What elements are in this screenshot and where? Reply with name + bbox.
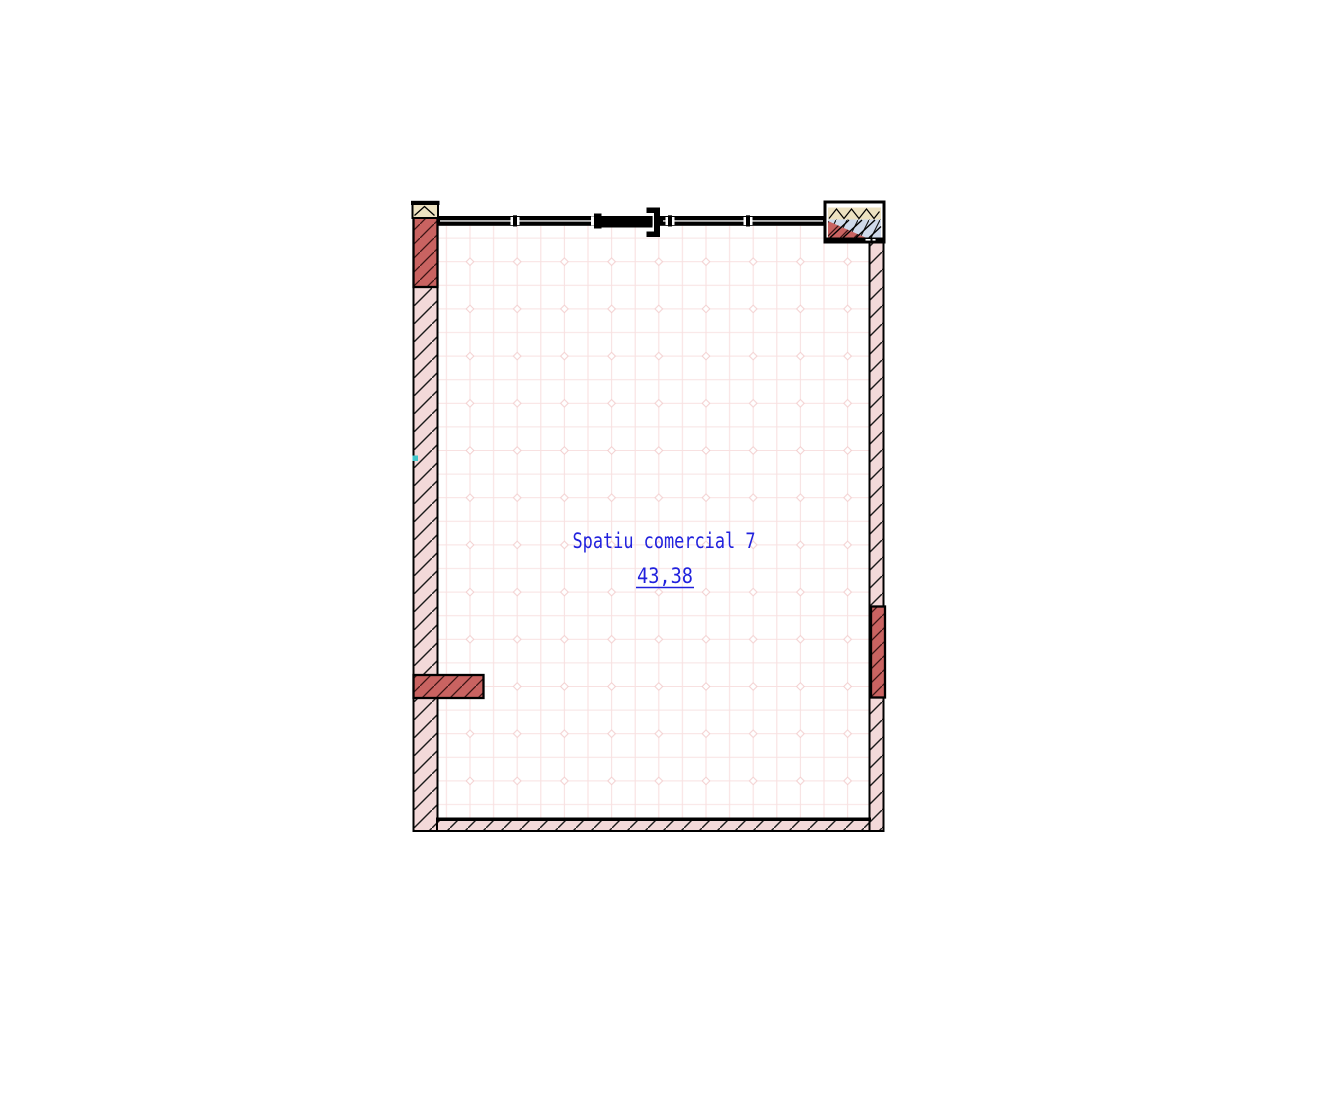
bottom-wall-interior-edge: [436, 818, 871, 821]
left-top-pier: [414, 218, 438, 288]
right-wall: [870, 242, 884, 831]
door-jamb-left: [594, 214, 602, 229]
floor-plan: Spatiu comercial 7 43,38: [411, 201, 885, 831]
room-name-label: Spatiu comercial 7: [573, 529, 756, 553]
grip-point: [413, 456, 419, 462]
top-right-wall-section: [825, 202, 884, 242]
door-gap-right: [653, 216, 654, 228]
edge-mark: [866, 239, 871, 241]
left-mid-pier: [414, 675, 484, 698]
room-area-label: 43,38: [637, 564, 693, 588]
door-leaf: [602, 217, 653, 228]
top-left-cap-edge: [411, 201, 440, 205]
drawing-canvas: Spatiu comercial 7 43,38: [0, 0, 1320, 1106]
bottom-wall: [437, 820, 884, 831]
room-floor-grid: [438, 226, 870, 818]
left-wall: [414, 217, 438, 831]
top-left-wall-cap: [411, 201, 440, 218]
right-pier: [871, 607, 885, 698]
door-gap-left: [591, 216, 594, 225]
edge-mark: [873, 239, 876, 241]
window-glass-line-right: [663, 220, 823, 221]
